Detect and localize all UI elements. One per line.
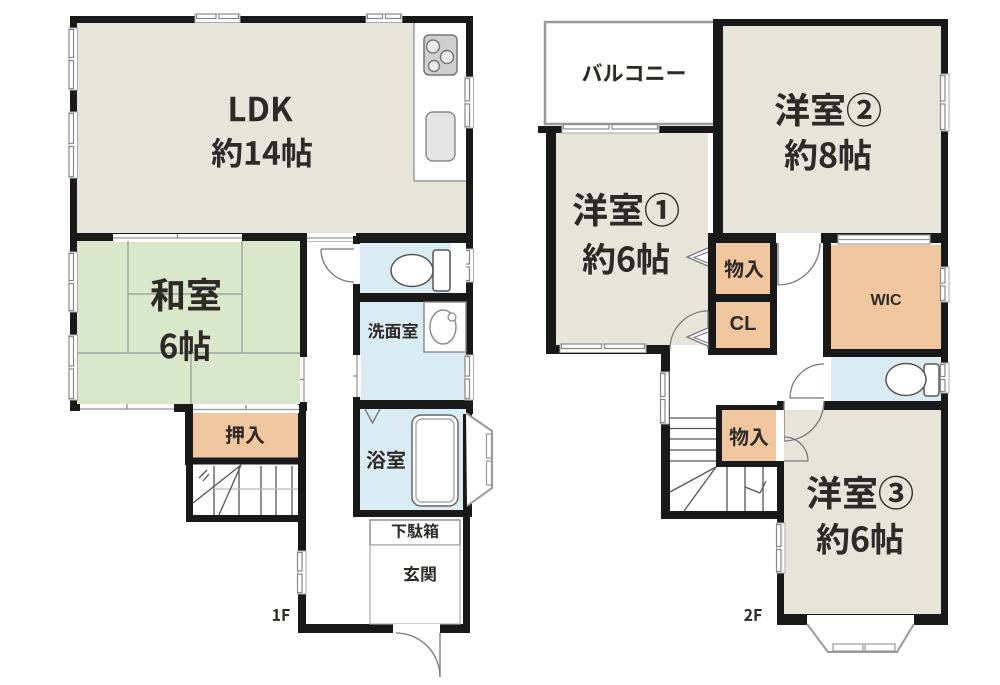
svg-text:CL: CL: [730, 313, 757, 335]
svg-text:WIC: WIC: [870, 292, 902, 309]
